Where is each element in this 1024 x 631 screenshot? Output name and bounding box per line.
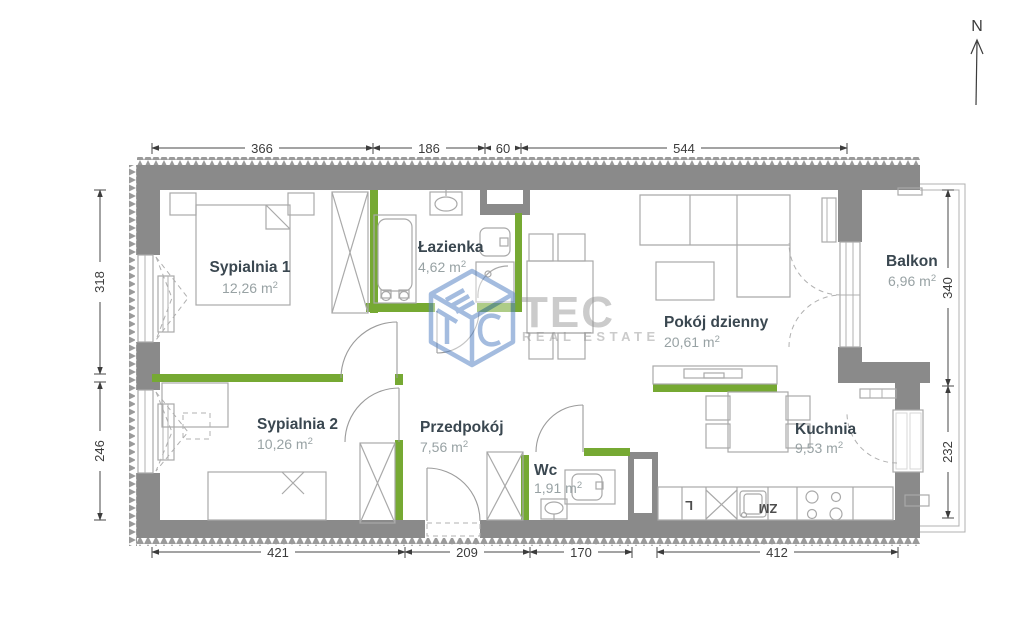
bed-icon (208, 472, 326, 520)
room-name: Pokój dzienny (664, 314, 769, 331)
north-label: N (971, 18, 983, 35)
dimensions-right: 340 232 (939, 190, 957, 518)
room-area: 6,96 m2 (888, 273, 936, 289)
chair-icon (183, 413, 210, 439)
room-name: Przedpokój (420, 419, 504, 436)
chair-icon (558, 234, 585, 261)
room-name: Sypialnia 1 (210, 259, 291, 276)
room-area: 9,53 m2 (795, 440, 843, 456)
window-bedroom1 (138, 255, 188, 342)
room-name: Łazienka (418, 239, 484, 256)
exterior-walls (135, 165, 930, 538)
dimensions-left: 318 246 (91, 190, 109, 520)
door-wc (536, 405, 583, 452)
watermark: TEC REAL ESTATE (431, 271, 660, 365)
door-bedroom1 (341, 322, 397, 378)
bathtub-icon (374, 215, 416, 303)
dimension-label: 340 (940, 277, 955, 299)
dimensions-top: 366 186 60 544 (152, 141, 847, 156)
dishwasher-label: ZM (759, 501, 778, 516)
floor-plan: L ZM TEC REAL ESTATE Sypialnia 1 12,26 (0, 0, 1024, 631)
dimension-label: 544 (673, 141, 695, 156)
room-area: 1,91 m2 (534, 480, 582, 496)
dimension-label: 209 (456, 545, 478, 560)
kitchen-furniture: L ZM (658, 392, 893, 520)
chair-icon (786, 396, 810, 420)
watermark-tagline: REAL ESTATE (522, 329, 660, 344)
chair-icon (706, 424, 730, 448)
dimension-label: 421 (267, 545, 289, 560)
dimensions-bottom: 421 209 170 412 (152, 545, 898, 560)
desk-icon (162, 383, 228, 427)
radiator-icon (860, 389, 896, 398)
dimension-label: 318 (92, 271, 107, 293)
chair-icon (529, 234, 553, 261)
chair-icon (706, 396, 730, 420)
room-area: 7,56 m2 (420, 439, 468, 455)
kitchen-table-icon (728, 392, 788, 452)
room-name: Balkon (886, 253, 938, 270)
dimension-label: 60 (496, 141, 510, 156)
toilet-icon (480, 228, 510, 256)
nightstand-icon (288, 193, 314, 215)
floor-plan-page: L ZM TEC REAL ESTATE Sypialnia 1 12,26 (0, 0, 1024, 631)
dimension-label: 232 (940, 441, 955, 463)
room-labels: Sypialnia 1 12,26 m2 Łazienka 4,62 m2 Po… (210, 239, 938, 496)
room-area: 4,62 m2 (418, 259, 466, 275)
room-area: 20,61 m2 (664, 334, 720, 350)
tec-cube-logo-icon (431, 271, 513, 365)
dimension-label: 366 (251, 141, 273, 156)
room-name: Wc (534, 462, 558, 479)
room-name: Sypialnia 2 (257, 416, 338, 433)
dimension-label: 246 (92, 440, 107, 462)
room-area: 12,26 m2 (222, 280, 278, 296)
dimension-label: 170 (570, 545, 592, 560)
room-area: 10,26 m2 (257, 436, 313, 452)
north-compass: N (971, 18, 983, 105)
radiator-icon (158, 276, 174, 332)
radiator-icon (822, 198, 836, 242)
door-bedroom2 (345, 388, 399, 442)
sofa-icon (640, 195, 790, 297)
stove-icon (806, 491, 842, 520)
door-entrance (427, 468, 480, 521)
coffee-table-icon (656, 262, 714, 300)
room-name: Kuchnia (795, 421, 857, 438)
dimension-label: 186 (418, 141, 440, 156)
dimension-label: 412 (766, 545, 788, 560)
fridge-label: L (685, 498, 693, 513)
window-bedroom2 (138, 390, 188, 473)
nightstand-icon (170, 193, 196, 215)
north-arrow-icon (976, 42, 977, 105)
